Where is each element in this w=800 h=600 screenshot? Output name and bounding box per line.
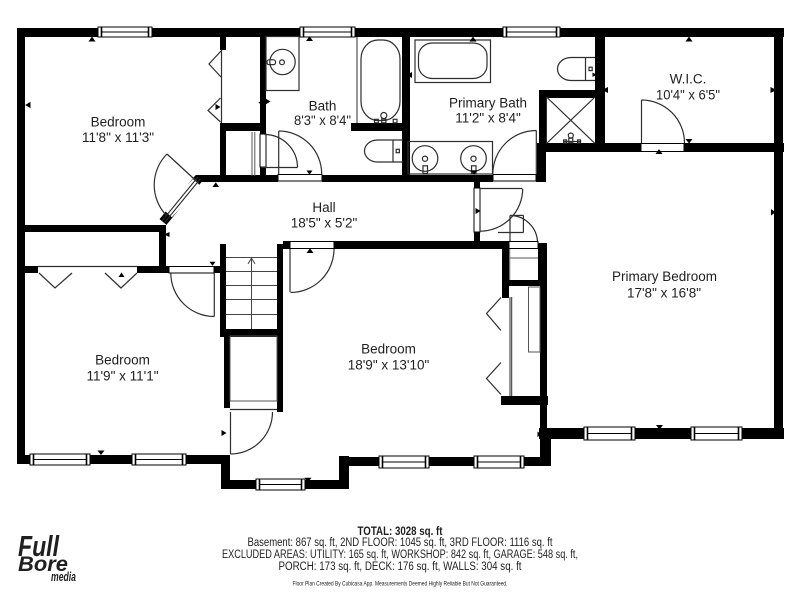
svg-text:Floor Plan Created By Cubicasa: Floor Plan Created By Cubicasa App. Meas… [293,581,508,588]
svg-text:Primary Bath: Primary Bath [449,96,527,111]
svg-text:11'2" x 8'4": 11'2" x 8'4" [455,111,521,126]
svg-text:PORCH: 173 sq. ft, DECK: 176 s: PORCH: 173 sq. ft, DECK: 176 sq. ft, WAL… [279,561,523,573]
svg-text:W.I.C.: W.I.C. [670,72,707,87]
svg-text:Primary Bedroom: Primary Bedroom [612,269,717,284]
svg-text:8'3" x 8'4": 8'3" x 8'4" [294,113,351,128]
svg-text:EXCLUDED AREAS: UTILITY: 165 s: EXCLUDED AREAS: UTILITY: 165 sq. ft, WOR… [222,549,578,561]
svg-text:18'5" x 5'2": 18'5" x 5'2" [291,216,358,231]
svg-text:Bedroom: Bedroom [361,342,416,357]
svg-text:11'9" x 11'1": 11'9" x 11'1" [86,369,158,384]
svg-text:18'9" x 13'10": 18'9" x 13'10" [348,358,430,373]
svg-text:Bedroom: Bedroom [95,353,150,368]
svg-text:Basement: 867 sq. ft, 2ND FLOO: Basement: 867 sq. ft, 2ND FLOOR: 1045 sq… [248,537,554,549]
svg-text:media: media [51,569,76,584]
svg-text:11'8" x 11'3": 11'8" x 11'3" [82,130,154,145]
svg-text:Bath: Bath [309,99,337,114]
svg-text:10'4" x 6'5": 10'4" x 6'5" [656,88,720,103]
svg-text:Hall: Hall [312,200,335,215]
svg-text:17'8" x 16'8": 17'8" x 16'8" [627,286,701,301]
svg-text:Bedroom: Bedroom [91,115,146,130]
